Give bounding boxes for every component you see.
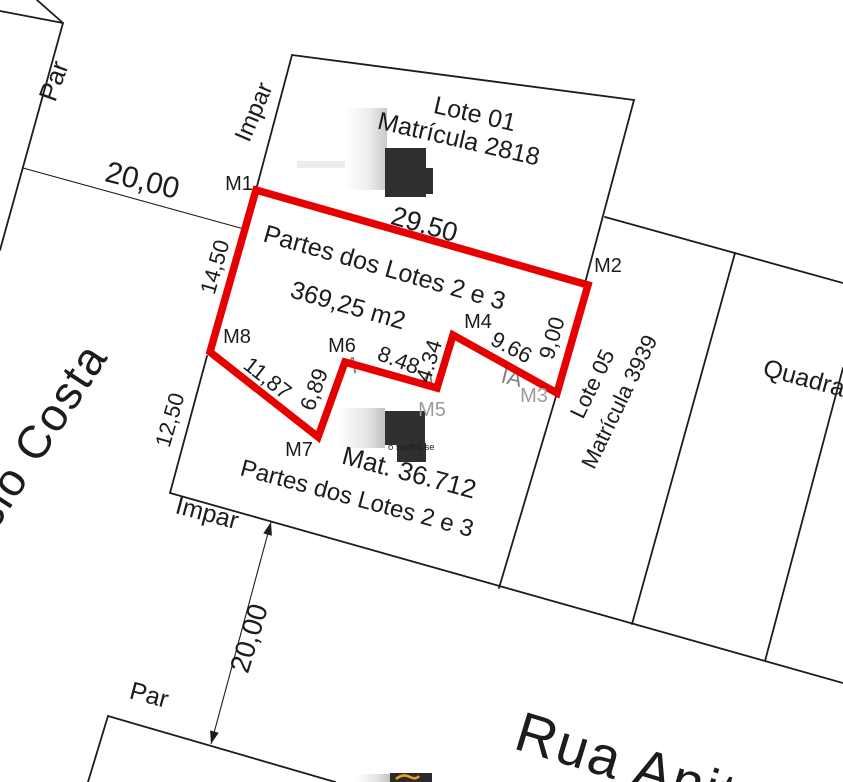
street-edge-line-top-left <box>0 11 63 23</box>
redaction-box-top <box>385 148 426 197</box>
marker-m7: M7 <box>285 439 313 461</box>
arrowhead-down-icon <box>210 730 219 744</box>
street-side-label-par-top: Par <box>33 56 75 105</box>
marker-m6: M6 <box>328 335 356 357</box>
marker-m1: M1 <box>225 173 253 195</box>
arrowhead-up-icon <box>263 522 272 536</box>
rua-anita-north-edge <box>170 493 843 683</box>
watermark-text-fragment: o sonho se <box>388 442 434 453</box>
quadra-label: Quadra <box>760 354 843 403</box>
survey-plat-canvas: o sonho se A A IA ácio Costa Rua Anita P… <box>0 0 843 782</box>
street-side-label-impar-bottom: Impar <box>173 491 242 535</box>
marker-m5: M5 <box>418 399 446 421</box>
right-block-north-edge <box>605 217 843 283</box>
lote01-north-edge <box>292 55 634 100</box>
highlight-parcel-area: 369,25 m2 <box>287 276 408 335</box>
lower-parcel-east-edge <box>499 393 557 588</box>
street-corner-line-top-left <box>0 0 63 250</box>
street-side-label-par-bottom: Par <box>127 677 172 714</box>
street-name-bottom: Rua Anita <box>508 699 776 782</box>
marker-m3: M3 <box>520 385 548 407</box>
marker-m2: M2 <box>594 255 622 277</box>
lote05-east-edge <box>632 253 735 624</box>
quadra-east-edge <box>765 368 843 661</box>
redaction-box-top-step <box>421 168 433 194</box>
dim-street-offset-bottom: 20,00 <box>224 600 274 676</box>
marker-m8: M8 <box>223 326 251 348</box>
marker-m4: M4 <box>464 311 492 333</box>
plat-drawing: o sonho se A A IA ácio Costa Rua Anita P… <box>0 0 843 782</box>
dim-street-offset-top: 20,00 <box>102 156 183 206</box>
redaction-strip-top <box>297 161 345 168</box>
street-name-left: ácio Costa <box>0 333 118 560</box>
street-corner-line-bottom-left <box>88 716 108 782</box>
redaction-fade-box-middle <box>337 408 385 448</box>
logo-fade-strip <box>355 774 390 782</box>
rua-anita-south-edge <box>108 716 335 782</box>
